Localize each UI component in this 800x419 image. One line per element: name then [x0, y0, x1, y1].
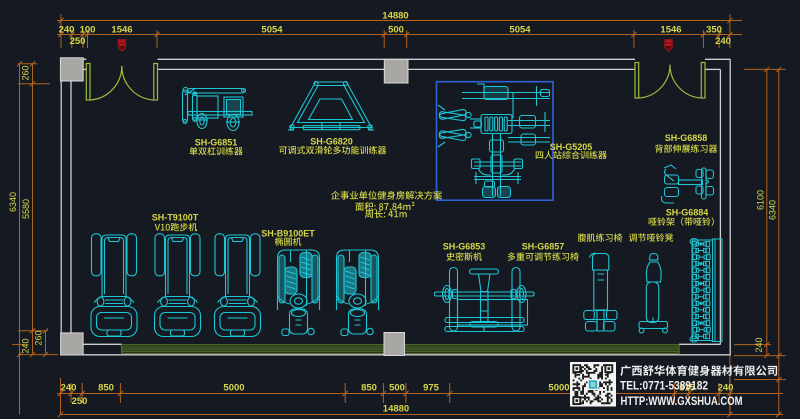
svg-text:SH-G6851: SH-G6851: [195, 138, 238, 148]
svg-text:1546: 1546: [660, 25, 681, 36]
svg-text:5580: 5580: [21, 199, 31, 219]
svg-text:TEL:0771-5389182: TEL:0771-5389182: [620, 379, 708, 393]
svg-text:6340: 6340: [768, 200, 778, 220]
svg-text:SH-G6884: SH-G6884: [666, 208, 709, 218]
svg-text:SH-G6857: SH-G6857: [522, 242, 565, 252]
svg-text:260: 260: [21, 65, 31, 80]
svg-text:SH-T9100T: SH-T9100T: [152, 213, 199, 223]
svg-text:5000: 5000: [548, 383, 569, 394]
svg-text:100: 100: [80, 25, 96, 36]
svg-text:SH-G6853: SH-G6853: [443, 242, 486, 252]
svg-text:6340: 6340: [8, 192, 18, 212]
svg-text:1546: 1546: [111, 25, 132, 36]
svg-text:SH-G6858: SH-G6858: [665, 133, 708, 143]
svg-text:240: 240: [59, 25, 75, 36]
svg-text:5000: 5000: [223, 383, 244, 394]
svg-text:14880: 14880: [383, 404, 409, 415]
svg-text:14880: 14880: [382, 11, 408, 22]
svg-text:240: 240: [754, 337, 764, 352]
svg-text:260: 260: [34, 330, 44, 345]
svg-text:240: 240: [715, 36, 731, 47]
svg-text:850: 850: [361, 383, 377, 394]
svg-text:SH-B9100ET: SH-B9100ET: [261, 229, 315, 239]
svg-text:5054: 5054: [509, 25, 531, 36]
svg-text:240: 240: [718, 383, 734, 394]
svg-text:SH-G6820: SH-G6820: [310, 137, 353, 147]
svg-text:240: 240: [21, 338, 31, 353]
svg-text:6100: 6100: [756, 190, 766, 210]
svg-text:975: 975: [423, 383, 440, 394]
svg-text:850: 850: [98, 383, 114, 394]
svg-text:HTTP:WWW.GXSHUA.COM: HTTP:WWW.GXSHUA.COM: [621, 394, 743, 408]
svg-text:250: 250: [72, 396, 88, 407]
svg-text:SH-G5205: SH-G5205: [550, 142, 593, 152]
svg-text:5054: 5054: [261, 25, 283, 36]
svg-text:240: 240: [61, 383, 77, 394]
svg-text:500: 500: [389, 383, 405, 394]
svg-text:250: 250: [70, 36, 86, 47]
svg-text:500: 500: [388, 25, 404, 36]
svg-text:350: 350: [706, 25, 722, 36]
